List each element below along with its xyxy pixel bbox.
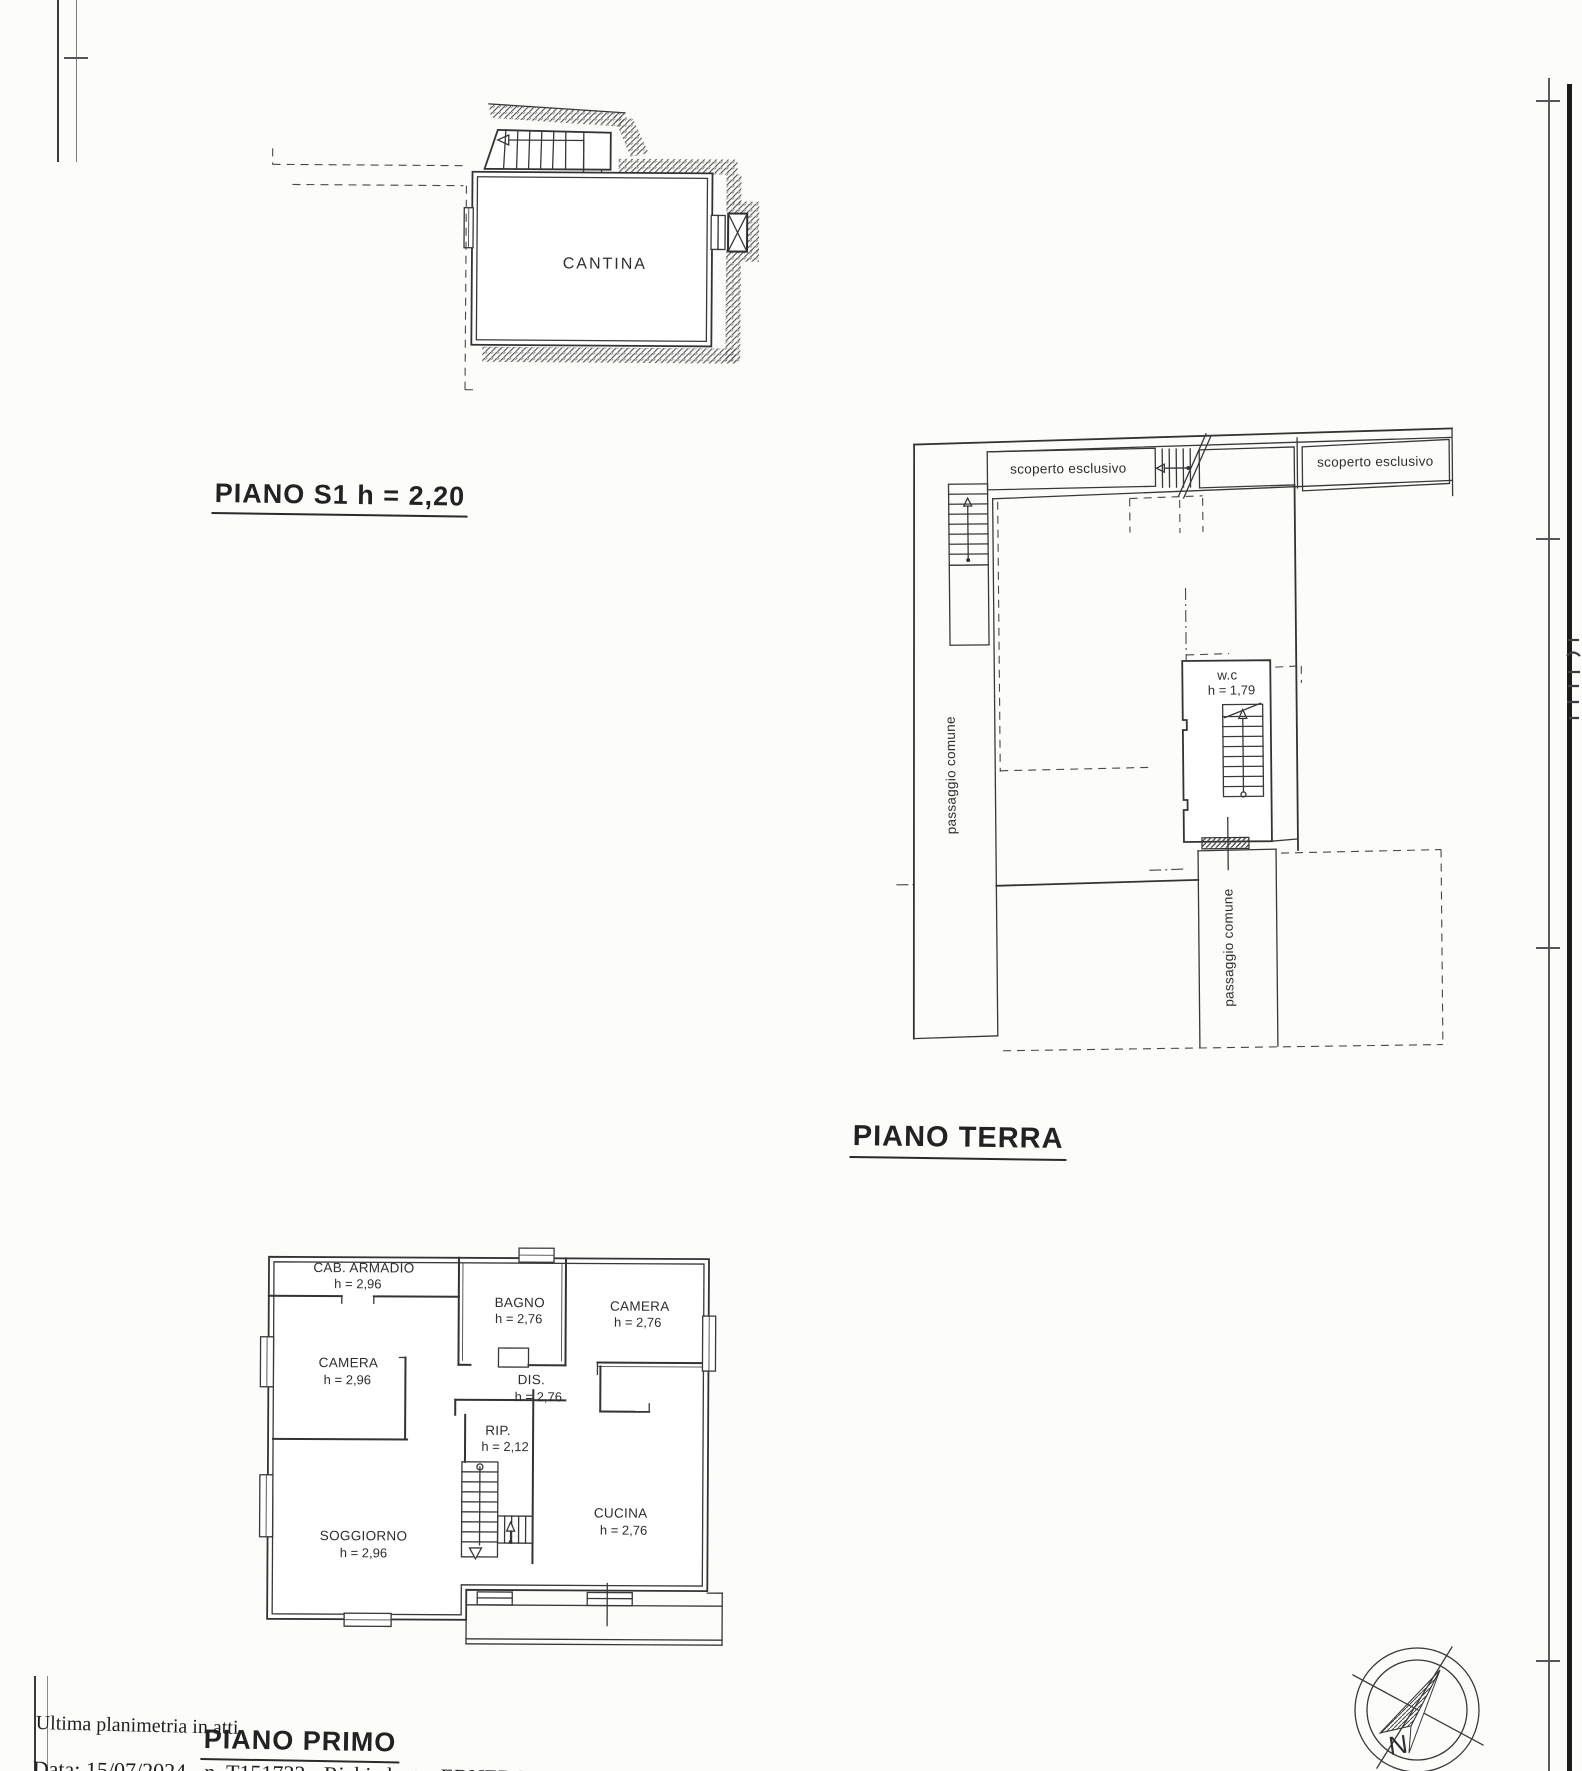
right-border-tick-3 bbox=[1536, 947, 1560, 949]
north-label: N bbox=[1387, 1729, 1410, 1761]
terra-dashed-boundaries bbox=[893, 494, 1443, 1052]
wc-window-sill bbox=[1202, 837, 1249, 848]
room-label: SOGGIORNO bbox=[320, 1528, 408, 1543]
plan-piano-terra: scoperto esclusivo scoperto esclusivo bbox=[892, 415, 1478, 1071]
stair-direction-arrow bbox=[964, 498, 972, 506]
room-label: DIS. bbox=[518, 1372, 546, 1387]
label-passaggio-comune-bottom: passaggio comune bbox=[1220, 888, 1236, 1006]
label-scoperto-right: scoperto esclusivo bbox=[1317, 454, 1434, 470]
room-label-cantina: CANTINA bbox=[563, 255, 647, 273]
label-wc: w.c bbox=[1216, 667, 1238, 682]
room-label: CAMERA bbox=[319, 1355, 379, 1370]
section-cut-mark bbox=[1178, 434, 1207, 496]
room-height: h = 2,96 bbox=[334, 1276, 381, 1291]
terra-main-walls bbox=[993, 485, 1300, 1049]
room-height: h = 2,76 bbox=[495, 1311, 542, 1326]
room-height: h = 2,12 bbox=[481, 1439, 528, 1454]
plan-piano-s1: CANTINA bbox=[239, 86, 781, 410]
left-border-tick bbox=[64, 57, 88, 59]
room-height: h = 2,96 bbox=[340, 1545, 387, 1560]
title-piano-s1: PIANO S1 h = 2,20 bbox=[211, 478, 468, 518]
terra-left-stair bbox=[949, 484, 990, 645]
right-border-tick-1 bbox=[1536, 100, 1560, 102]
right-border-line-thin bbox=[1548, 78, 1550, 1771]
title-piano-terra: PIANO TERRA bbox=[849, 1120, 1066, 1161]
scanned-floorplan-page: CANTINA PIANO S1 h = 2,20 bbox=[0, 0, 1582, 1771]
right-border-tick-2 bbox=[1536, 538, 1560, 540]
plan-piano-primo: CAB. ARMADIO h = 2,96 BAGNO h = 2,76 CAM… bbox=[252, 1242, 744, 1665]
room-label: CUCINA bbox=[594, 1506, 648, 1521]
compass-rose: N bbox=[1330, 1620, 1530, 1771]
right-border-line-dark bbox=[1567, 84, 1572, 1771]
left-border-line-light bbox=[76, 0, 77, 162]
title-piano-primo: PIANO PRIMO bbox=[200, 1724, 399, 1763]
room-height: h = 2,76 bbox=[600, 1523, 647, 1538]
stair-direction-arrow bbox=[1156, 464, 1164, 472]
room-height: h = 2,96 bbox=[324, 1372, 371, 1387]
room-label: RIP. bbox=[485, 1423, 511, 1438]
boundary-dashed-lines bbox=[271, 148, 481, 389]
left-border-line-dark bbox=[57, 0, 59, 162]
right-border-tick-4 bbox=[1536, 1660, 1560, 1662]
clipped-margin-glyphs bbox=[1560, 632, 1582, 732]
label-passaggio-comune-left: passaggio comune bbox=[943, 716, 959, 834]
north-arrow-hatched-half bbox=[1380, 1670, 1440, 1733]
window-right bbox=[711, 215, 718, 249]
label-wc-height: h = 1,79 bbox=[1208, 682, 1256, 697]
label-scoperto-left: scoperto esclusivo bbox=[1010, 461, 1127, 477]
room-height: h = 2,76 bbox=[614, 1315, 661, 1330]
room-label: CAMERA bbox=[610, 1299, 670, 1314]
room-height: h = 2,76 bbox=[515, 1389, 562, 1404]
room-label: CAB. ARMADIO bbox=[313, 1260, 414, 1276]
room-label: BAGNO bbox=[495, 1295, 545, 1310]
lightwell-box bbox=[728, 214, 747, 252]
